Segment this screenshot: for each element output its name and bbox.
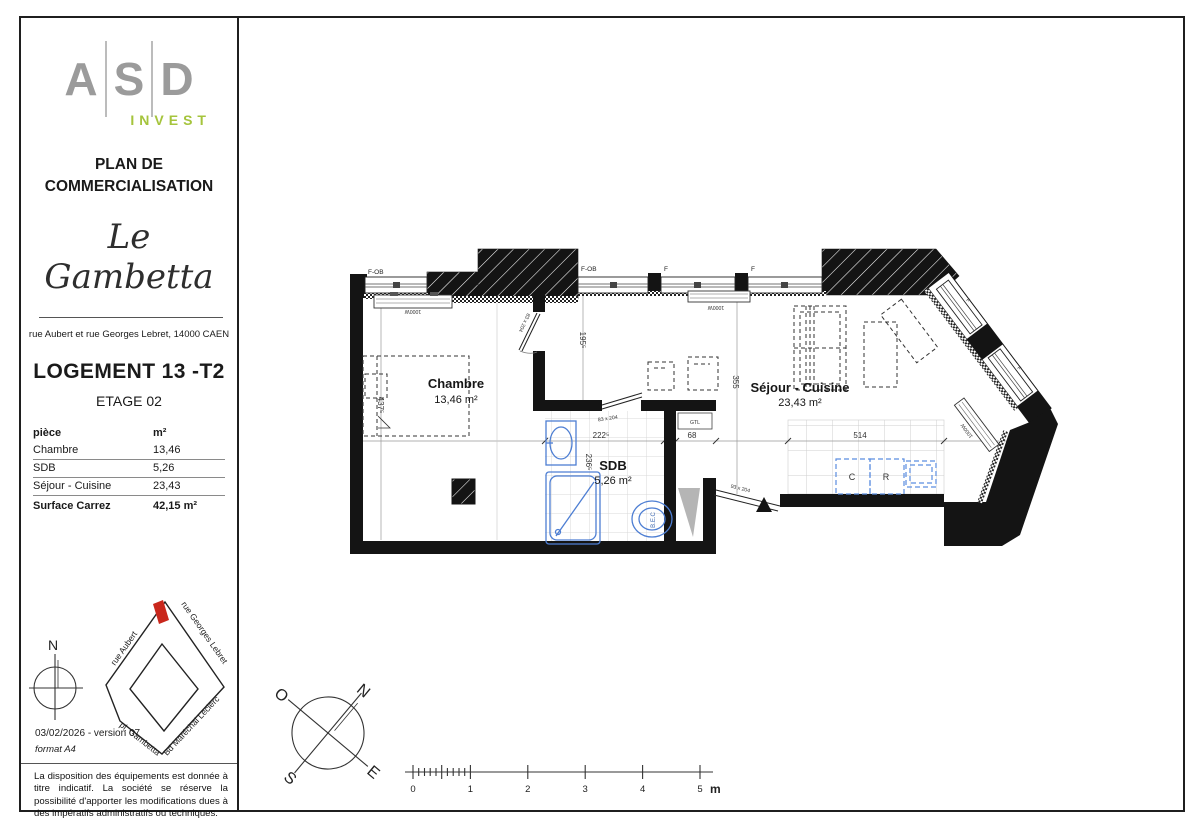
plan-sheet: A S D INVEST PLAN DE COMMERCIALISATION L…: [0, 0, 1200, 829]
dim-514: 514: [853, 431, 867, 440]
window-fob-chambre: F-OB: [365, 269, 427, 293]
window-fob-sejour: F-OB: [578, 266, 648, 293]
wall-chambre-east-upper: [533, 293, 545, 312]
wall-sdb-east: [664, 411, 676, 541]
dim-236: 236⁵: [584, 454, 593, 471]
cooker-label: C: [849, 472, 856, 482]
compass-south: S: [280, 769, 299, 789]
sdb-name: SDB: [599, 458, 626, 473]
chambre-area: 13,46 m²: [434, 394, 478, 406]
gtl-label: GTL: [690, 420, 700, 426]
scale-1: 1: [468, 784, 473, 795]
scale-3: 3: [583, 784, 588, 795]
chairs: [648, 357, 718, 390]
entry-arrow: [756, 497, 772, 512]
window-fob-label: F-OB: [581, 266, 597, 273]
scale-4: 4: [640, 784, 645, 795]
radiator-diagonal: 1000W: [948, 398, 999, 456]
wall-south: [350, 541, 716, 554]
dim-68: 68: [688, 431, 697, 440]
door-entry: 93 x 204: [714, 484, 780, 512]
wall-entry-west: [703, 478, 716, 554]
window-f-sejour-1: F: [661, 266, 735, 293]
scale-0: 0: [410, 784, 415, 795]
floor-plan: F F GTL: [0, 0, 1200, 829]
fridge-label: R: [883, 472, 890, 482]
chambre-name: Chambre: [428, 376, 484, 391]
structural-column: [452, 479, 475, 504]
radiator-chambre: 1000W: [374, 292, 452, 314]
compass-west: O: [271, 685, 291, 706]
sejour-name: Séjour - Cuisine: [751, 380, 850, 395]
dining-table: [794, 306, 846, 390]
sejour-area: 23,43 m²: [778, 397, 822, 409]
compass-north: N: [353, 681, 373, 701]
radiator-label: 1000W: [708, 304, 725, 310]
wall-chambre-east-lower: [533, 351, 545, 411]
window-f-label: F: [664, 266, 668, 273]
wall-sdb-north-right: [641, 400, 716, 411]
scale-bar: 0 1 2 3 4 5 m: [405, 765, 721, 796]
technical-shaft: [678, 488, 700, 537]
wall-west: [350, 288, 363, 554]
window-f-label: F: [751, 266, 755, 273]
dim-222: 222⁵: [593, 431, 610, 440]
compass-rose: N S E O: [234, 642, 419, 827]
scale-2: 2: [525, 784, 530, 795]
water-heater-label: B.E.C: [651, 511, 657, 527]
wall-sdb-north-left: [545, 400, 602, 411]
radiator-label: 1000W: [405, 308, 422, 314]
furniture-sideboard: [881, 299, 938, 363]
window-mullion: [648, 273, 661, 294]
dim-195: 195⁵: [578, 332, 587, 349]
door-chambre: 83 x 204: [517, 312, 540, 353]
window-fob-label: F-OB: [368, 269, 384, 276]
scale-5: 5: [697, 784, 702, 795]
wall-north-mass: [478, 249, 578, 299]
dim-437: 437⁵: [376, 397, 385, 414]
door-size-label: 93 x 204: [730, 484, 751, 495]
window-f-sejour-2: F: [748, 266, 822, 293]
radiator-sejour: 1000W: [688, 291, 750, 310]
dim-355: 355: [731, 375, 740, 389]
furniture-cabinet: [864, 322, 897, 387]
sdb-area: 5,26 m²: [594, 475, 632, 487]
scale-unit: m: [710, 782, 721, 796]
wall-kitchen-south: [780, 494, 944, 507]
wall-diagonal-glazed: F F: [924, 272, 1052, 427]
